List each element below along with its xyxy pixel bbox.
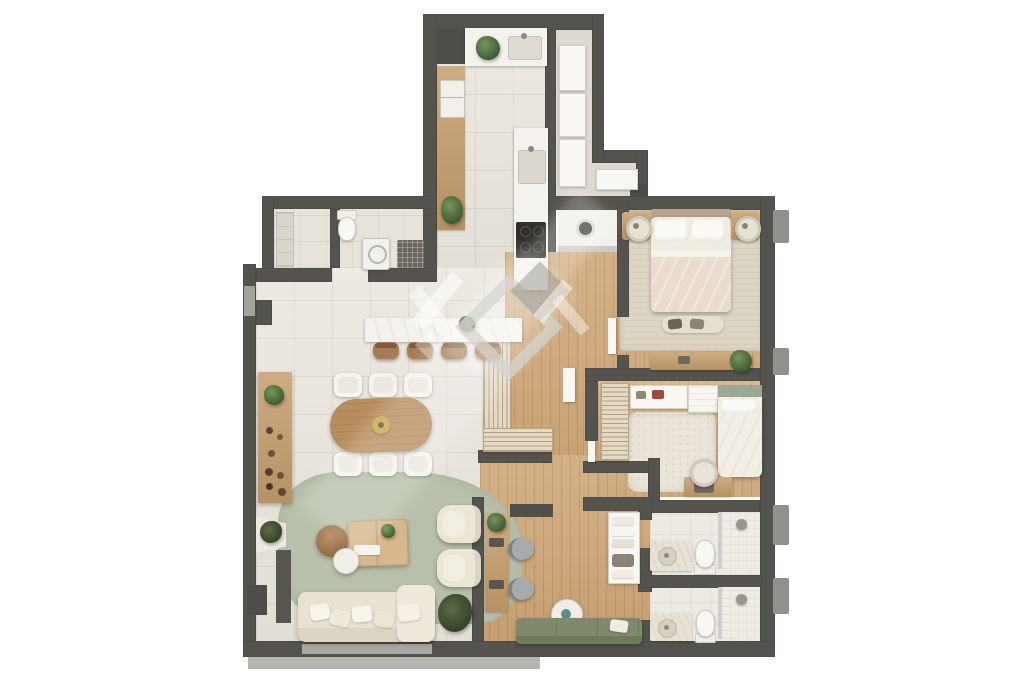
dining-chair-2 [369,373,397,397]
tv-panel [276,550,291,623]
cooktop-burner-1 [520,226,531,237]
laundry-toilet-bowl [338,217,356,241]
bedroom2-chair [690,459,718,487]
dresser-decor [678,356,690,364]
facade-pillar-3 [773,505,789,545]
kitchen-sink [508,36,542,60]
wardrobe-panel-3 [559,139,586,187]
sideboard-bottles-3 [266,483,273,490]
sideboard-vase-2 [277,434,283,440]
office-sofa-back [516,636,642,644]
master-sheet-fold [651,250,731,257]
armchair-2-seat [443,555,465,581]
office-plant [487,513,506,532]
dining-chair-5 [369,452,397,476]
facade-pillar-2 [773,348,789,375]
wall-bedrooms-top [545,196,775,210]
bath2-toilet-bowl [696,610,715,637]
nightstand-left-lamp-center [633,223,639,229]
nightstand-right-lamp [735,216,761,242]
sofa-pillow-3 [351,605,373,623]
bar-stool-3 [441,342,467,359]
shelf-red-box [652,390,664,399]
office-wall-shelf [510,504,553,517]
side-dark-cabinet [247,585,267,615]
cooktop-burner-4 [533,242,544,253]
armchair-1-seat [443,511,465,537]
sideboard-vase-1 [266,427,273,434]
refrigerator [440,80,465,118]
island-faucet [528,146,534,152]
coffee-table-plant [381,524,395,538]
bedroom2-cabinet [688,385,718,413]
cooktop-burner-2 [533,226,544,237]
washing-machine-door [368,245,387,264]
wall-laundry-top [262,196,437,209]
kitchen-faucet [521,33,527,39]
wall-kitchen-left [423,14,437,282]
office-chair-2 [508,578,534,600]
hall-door-leaf [563,368,575,402]
sideboard-vase-3 [268,450,275,457]
table-centerpiece-dot [378,422,384,428]
bath2-basin-drain [664,625,669,630]
kitchen-plant-top [476,36,500,60]
wall-left-stub [256,300,272,325]
office-monitor-1 [489,538,504,547]
wall-laundry-bottom-b [368,268,437,282]
refrigerator-door-split [440,97,463,98]
office-sofa-pillow [609,619,628,633]
island-sink [518,150,546,184]
guest-wc-basin [579,222,592,235]
bar-stool-1 [373,342,399,359]
dining-chair-6 [404,452,432,476]
bar-stool-2 [407,342,433,359]
facade-pillar-4 [773,578,789,614]
bath1-toilet-bowl [695,540,715,568]
side-table-round [333,548,359,574]
bar-counter [365,318,522,342]
sideboard-bottles-2 [277,472,284,479]
bedroom2-door-leaf [588,441,595,462]
kitchen-tall-cabinet [437,30,465,64]
laundry-shelving [276,212,294,267]
linen-towel-3 [612,539,634,547]
office-chair-1 [508,538,534,560]
wall-laundry-left [262,196,274,271]
bar-plant [459,316,475,332]
sideboard-flowers [264,385,284,405]
bench-cushion-2 [690,318,705,329]
bath2-showerhead [736,594,747,605]
facade-pillar-1 [773,210,789,243]
wardrobe-panel-2 [559,93,586,137]
left-window [244,286,255,316]
wall-laundry-bottom-a [256,268,332,282]
master-door-leaf [608,318,616,354]
sofa-pillow-1 [309,602,331,621]
sofa-pillow-5 [397,603,421,623]
bedroom2-pillow [722,400,758,413]
nightstand-right-lamp-center [742,223,748,229]
master-blanket [651,256,731,312]
wall-bedroom2-left [585,381,598,441]
wardrobe-panel-niche [596,169,638,190]
coffee-table-book [354,545,380,555]
dining-chair-3 [404,373,432,397]
guest-wc-glass [558,246,617,252]
office-monitor-2 [489,580,504,589]
cooktop-burner-3 [520,242,531,253]
bath1-showerhead [736,519,747,530]
linen-towel-4 [612,570,634,578]
wall-bathrooms-left-a [638,497,652,520]
linen-basket [612,554,634,567]
sofa-pillow-4 [373,610,395,629]
bedroom2-slatted-wardrobe [601,383,629,461]
shelf-decor-dots [636,391,646,399]
master-dresser [650,352,736,370]
bar-stool-4 [475,342,501,359]
balcony-sliding-door [302,644,432,654]
linen-towel-2 [612,528,634,536]
master-pillow-left [655,219,690,241]
sideboard-bottles-1 [265,468,273,476]
bath1-basin-drain [664,553,669,558]
master-plant [730,350,752,372]
dining-chair-4 [334,452,362,476]
sideboard-bottles-4 [278,488,286,496]
utility-rack [397,240,424,268]
kitchen-plant-cabinet [441,196,463,224]
floor-plan-canvas [0,0,1024,683]
nightstand-left-lamp [626,216,652,242]
master-pillow-right [692,219,727,241]
balcony-slab [248,657,540,669]
linen-towel-1 [612,517,634,525]
dining-chair-1 [334,373,362,397]
hall-slatted-console-horizontal [483,428,553,452]
wall-closet-right [592,14,604,163]
wardrobe-panel-1 [559,45,586,91]
bench-cushion-1 [668,318,683,329]
